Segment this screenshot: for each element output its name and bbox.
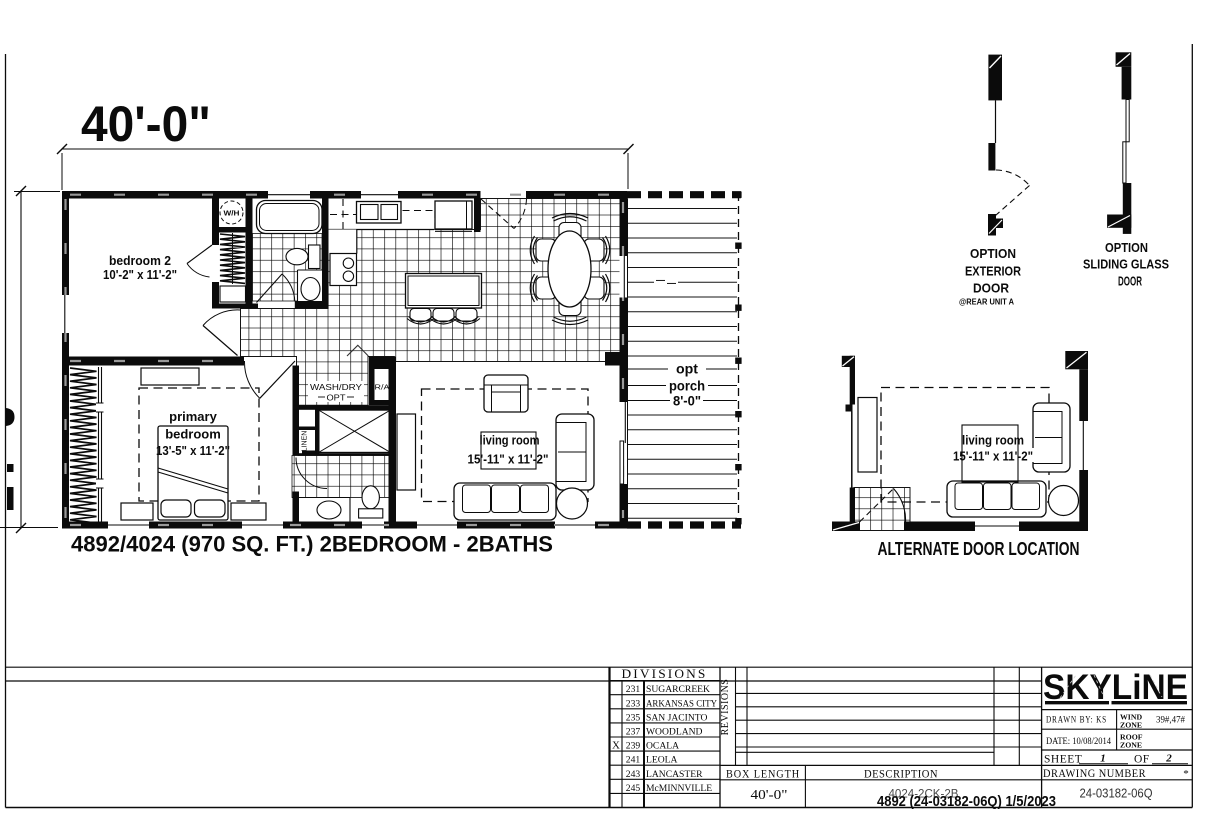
svg-text:13'-5" x 11'-2": 13'-5" x 11'-2" <box>156 443 230 458</box>
svg-text:OPTION: OPTION <box>1105 240 1148 255</box>
svg-text:living room: living room <box>480 433 540 448</box>
svg-text:living room: living room <box>962 433 1024 448</box>
svg-text:8'-0": 8'-0" <box>673 393 701 409</box>
svg-text:LANCASTER: LANCASTER <box>646 769 703 780</box>
svg-text:SHEET: SHEET <box>1044 754 1082 766</box>
svg-text:DOOR: DOOR <box>1118 274 1142 289</box>
svg-text:DIVISIONS: DIVISIONS <box>622 667 708 681</box>
svg-text:4892 (24-03182-06Q) 1/5/2023: 4892 (24-03182-06Q) 1/5/2023 <box>877 793 1056 810</box>
svg-text:241: 241 <box>626 755 641 766</box>
svg-text:SUGARCREEK: SUGARCREEK <box>646 684 710 695</box>
svg-text:243: 243 <box>626 769 641 780</box>
svg-text:WASH/DRY: WASH/DRY <box>310 382 362 392</box>
svg-text:237: 237 <box>626 727 641 738</box>
svg-text:40'-0": 40'-0" <box>751 787 788 802</box>
svg-text:DRAWING NUMBER: DRAWING NUMBER <box>1043 768 1146 780</box>
svg-text:bedroom: bedroom <box>165 427 221 442</box>
svg-text:SAN JACINTO: SAN JACINTO <box>646 712 707 723</box>
svg-text:*: * <box>1183 768 1189 780</box>
svg-text:15'-11" x 11'-2": 15'-11" x 11'-2" <box>953 449 1033 464</box>
svg-text:DOOR: DOOR <box>973 281 1010 296</box>
svg-text:R/A: R/A <box>375 383 390 392</box>
svg-text:4892/4024 (970 SQ. FT.) 2BEDRO: 4892/4024 (970 SQ. FT.) 2BEDROOM - 2BATH… <box>71 532 553 557</box>
svg-text:239: 239 <box>626 741 641 752</box>
svg-text:@REAR UNIT A: @REAR UNIT A <box>959 297 1014 307</box>
svg-text:ARKANSAS CITY: ARKANSAS CITY <box>646 698 717 709</box>
svg-text:ALTERNATE DOOR LOCATION: ALTERNATE DOOR LOCATION <box>878 538 1080 559</box>
svg-text:EXTERIOR: EXTERIOR <box>965 264 1022 279</box>
svg-text:primary: primary <box>169 409 217 424</box>
svg-text:SLIDING GLASS: SLIDING GLASS <box>1083 257 1169 272</box>
svg-text:DESCRIPTION: DESCRIPTION <box>864 768 938 780</box>
svg-text:opt: opt <box>676 361 698 377</box>
svg-text:ZONE: ZONE <box>1120 721 1142 730</box>
svg-text:235: 235 <box>626 712 641 723</box>
svg-text:OPT: OPT <box>327 393 346 403</box>
svg-text:OCALA: OCALA <box>646 741 679 752</box>
svg-text:X: X <box>612 740 620 752</box>
svg-text:DATE: 10/08/2014: DATE: 10/08/2014 <box>1046 736 1111 746</box>
svg-text:DRAWN BY: KS: DRAWN BY: KS <box>1046 715 1107 725</box>
svg-text:LEOLA: LEOLA <box>646 755 678 766</box>
svg-text:OF: OF <box>1134 754 1150 766</box>
svg-text:bedroom 2: bedroom 2 <box>109 254 171 268</box>
svg-text:1: 1 <box>1100 753 1106 765</box>
svg-text:233: 233 <box>626 698 641 709</box>
svg-text:15'-11" x 11'-2": 15'-11" x 11'-2" <box>468 452 549 467</box>
svg-text:BOX LENGTH: BOX LENGTH <box>726 768 800 780</box>
svg-text:McMINNVILLE: McMINNVILLE <box>646 783 712 794</box>
svg-text:OPTION: OPTION <box>970 246 1016 261</box>
svg-text:231: 231 <box>626 684 641 695</box>
svg-text:porch: porch <box>669 378 705 394</box>
svg-text:W/H: W/H <box>224 210 240 217</box>
svg-text:LINEN: LINEN <box>302 431 309 452</box>
svg-text:40'-0": 40'-0" <box>81 96 211 152</box>
svg-text:245: 245 <box>626 783 641 794</box>
svg-text:WOODLAND: WOODLAND <box>646 727 703 738</box>
svg-text:10'-2" x 11'-2": 10'-2" x 11'-2" <box>103 268 177 282</box>
svg-text:2: 2 <box>1165 753 1172 765</box>
svg-text:39#,47#: 39#,47# <box>1156 715 1185 725</box>
svg-text:REVISIONS: REVISIONS <box>720 679 731 736</box>
svg-text:24-03182-06Q: 24-03182-06Q <box>1080 786 1153 801</box>
svg-text:ZONE: ZONE <box>1120 741 1142 750</box>
